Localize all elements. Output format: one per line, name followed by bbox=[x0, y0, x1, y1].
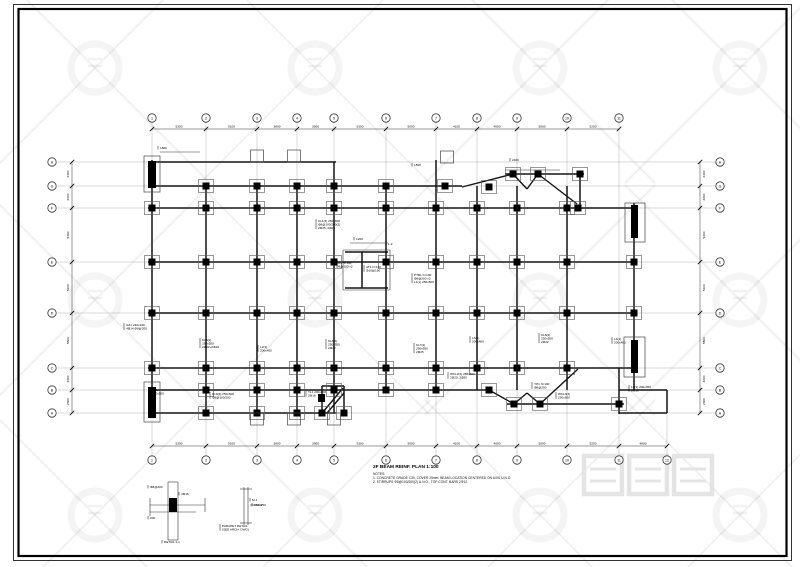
column bbox=[149, 205, 156, 212]
column bbox=[616, 401, 623, 408]
plan-title: 2F BEAM REINF. PLAN 1:100 bbox=[373, 464, 439, 470]
dim-label-bottom: 5100 bbox=[228, 442, 235, 446]
column bbox=[203, 259, 210, 266]
dim-label-top: 5300 bbox=[357, 125, 364, 129]
grid-bubble-label: G bbox=[51, 184, 54, 188]
shear-wall bbox=[631, 340, 638, 373]
column bbox=[254, 259, 261, 266]
column bbox=[433, 365, 440, 372]
drawing-sheet: 5300510038003900530050004100400050005200… bbox=[0, 0, 800, 567]
dim-label-bottom: 4000 bbox=[494, 442, 501, 446]
column bbox=[564, 259, 571, 266]
annotation-text: 4Φ16 bbox=[181, 492, 189, 496]
column bbox=[514, 205, 521, 212]
grid-bubble-label: 9 bbox=[516, 116, 518, 120]
column bbox=[514, 365, 521, 372]
column bbox=[149, 310, 156, 317]
column bbox=[564, 205, 571, 212]
column bbox=[433, 387, 440, 394]
column bbox=[575, 205, 582, 212]
column bbox=[203, 365, 210, 372]
column bbox=[331, 365, 338, 372]
annotation-text: 200x400 bbox=[472, 339, 484, 343]
column bbox=[149, 259, 156, 266]
grid-bubble-label: 10 bbox=[565, 116, 569, 120]
grid-bubble-label: 2 bbox=[205, 458, 207, 462]
dim-label-right: 5500 bbox=[702, 337, 706, 344]
dim-label-bottom: 3900 bbox=[312, 442, 319, 446]
column bbox=[254, 365, 261, 372]
grid-bubble-label: 7 bbox=[435, 116, 437, 120]
beam-diagonal bbox=[489, 390, 514, 404]
annotation-text: Φ8@200 bbox=[534, 385, 547, 389]
dim-label-right: 2300 bbox=[702, 398, 706, 405]
column bbox=[474, 310, 481, 317]
dim-label-left: 2400 bbox=[66, 170, 70, 177]
column bbox=[294, 205, 301, 212]
column bbox=[331, 183, 338, 190]
grid-bubble-label: 1 bbox=[151, 116, 153, 120]
annotation-text: 1500 bbox=[414, 163, 421, 167]
annotation-text: 250x250 bbox=[254, 503, 266, 507]
column bbox=[203, 387, 210, 394]
grid-bubble-label: 5 bbox=[333, 458, 335, 462]
column bbox=[254, 205, 261, 212]
column bbox=[433, 310, 440, 317]
annotation-text: 2Φ25 bbox=[416, 350, 424, 354]
dim-label-bottom: 5000 bbox=[539, 442, 546, 446]
annotation-text: 2Φ25; 2Φ25 bbox=[318, 226, 335, 230]
grid-bubble-label: 12 bbox=[665, 458, 669, 462]
grid-bubble-label: 4 bbox=[296, 116, 298, 120]
grid-bubble-label: G bbox=[719, 184, 722, 188]
grid-bubble-label: 6 bbox=[385, 458, 387, 462]
grid-bubble-label: H bbox=[719, 160, 722, 164]
annotation-text: 250x500 bbox=[558, 395, 570, 399]
grid-bubble-label: 10 bbox=[565, 458, 569, 462]
column bbox=[254, 387, 261, 394]
grid-bubble-label: 11 bbox=[617, 116, 621, 120]
shear-wall bbox=[631, 205, 638, 238]
column bbox=[254, 183, 261, 190]
annotation-text: 200x400 bbox=[260, 348, 272, 352]
column bbox=[433, 259, 440, 266]
grid-bubble-label: C bbox=[719, 366, 722, 370]
sheet-border-inner bbox=[19, 9, 787, 556]
beam-diagonal bbox=[538, 174, 577, 204]
annotation-text: DETAIL 1-1 bbox=[164, 540, 180, 544]
annotation-text: Φ8@150 x2 bbox=[336, 264, 353, 268]
dim-label-right: 2400 bbox=[702, 170, 706, 177]
column bbox=[319, 410, 326, 417]
dim-label-top: 3900 bbox=[312, 125, 319, 129]
column bbox=[535, 171, 542, 178]
shear-wall bbox=[169, 498, 177, 512]
grid-bubble-label: 4 bbox=[296, 458, 298, 462]
watermark-diagonal bbox=[625, 0, 800, 183]
column bbox=[331, 310, 338, 317]
annotation-text: 2Φ20; 2Φ20 bbox=[450, 375, 467, 379]
annotation-text: 2Φ22+2Φ20 bbox=[202, 345, 219, 349]
column bbox=[442, 183, 449, 190]
column bbox=[203, 183, 210, 190]
column bbox=[510, 171, 517, 178]
annotation-text: Φ8@200 bbox=[150, 485, 163, 489]
column bbox=[514, 259, 521, 266]
column bbox=[577, 171, 584, 178]
annotation-text: 500x500 bbox=[152, 391, 164, 395]
dim-label-left: 2200 bbox=[66, 193, 70, 200]
watermark-diagonal bbox=[0, 185, 210, 415]
annotation-text: 4Φ14 Φ8@200 bbox=[126, 326, 147, 330]
annotation-text: L-2 bbox=[388, 242, 393, 246]
column bbox=[331, 205, 338, 212]
grid-bubble-label: 9 bbox=[516, 458, 518, 462]
annotation-text: 2Φ16 bbox=[631, 388, 639, 392]
grid-bubble-label: 3 bbox=[256, 458, 258, 462]
column bbox=[383, 387, 390, 394]
grid-bubble-label: 2 bbox=[205, 116, 207, 120]
annotation-text: 2Φ22 bbox=[328, 346, 336, 350]
column bbox=[564, 365, 571, 372]
column bbox=[433, 205, 440, 212]
column bbox=[294, 387, 301, 394]
dim-label-top: 5300 bbox=[176, 125, 183, 129]
site-logo-glyph bbox=[629, 456, 667, 494]
column bbox=[631, 259, 638, 266]
annotation-text: 2400 bbox=[512, 158, 519, 162]
dim-label-bottom: 4100 bbox=[453, 442, 460, 446]
dim-label-bottom: 3800 bbox=[274, 442, 281, 446]
dim-label-top: 5100 bbox=[228, 125, 235, 129]
column bbox=[486, 387, 493, 394]
dim-label-bottom: 5200 bbox=[590, 442, 597, 446]
column bbox=[294, 365, 301, 372]
column bbox=[514, 310, 521, 317]
annotation-text: (SEE ARCH. DWG) bbox=[222, 527, 249, 531]
column bbox=[383, 259, 390, 266]
column bbox=[341, 410, 348, 417]
dim-label-left: 5400 bbox=[66, 231, 70, 238]
grid-bubble-label: 8 bbox=[476, 116, 478, 120]
dim-label-top: 5000 bbox=[539, 125, 546, 129]
column bbox=[631, 310, 638, 317]
column-outline bbox=[288, 150, 301, 162]
dim-label-right: 2200 bbox=[702, 193, 706, 200]
annotation-text: 1800 bbox=[160, 146, 167, 150]
dim-label-bottom: 5000 bbox=[408, 442, 415, 446]
annotation-text: Φ8@100/200 bbox=[212, 395, 231, 399]
column bbox=[537, 401, 544, 408]
column bbox=[383, 205, 390, 212]
annotation-text: 200 bbox=[150, 516, 155, 520]
grid-bubble-label: 1 bbox=[151, 458, 153, 462]
column bbox=[474, 205, 481, 212]
dim-label-left: 5500 bbox=[66, 337, 70, 344]
grid-bubble-label: D bbox=[51, 311, 54, 315]
dim-label-right: 5100 bbox=[702, 284, 706, 291]
annotation-text: M-1 bbox=[252, 498, 258, 502]
column bbox=[203, 205, 210, 212]
column bbox=[474, 365, 481, 372]
column bbox=[331, 387, 338, 394]
grid-bubble-label: H bbox=[51, 160, 54, 164]
shear-wall bbox=[318, 394, 325, 402]
grid-bubble-label: 8 bbox=[476, 458, 478, 462]
annotation-text: 200x400 bbox=[614, 340, 626, 344]
annotation-text: Φ10@150 bbox=[366, 268, 380, 272]
grid-bubble-label: 5 bbox=[333, 116, 335, 120]
annotation-text: 2Φ18 bbox=[308, 393, 316, 397]
grid-bubble-label: 11 bbox=[617, 458, 621, 462]
dim-label-right: 2200 bbox=[702, 375, 706, 382]
site-logo-glyph bbox=[674, 456, 712, 494]
dim-label-left: 2200 bbox=[66, 375, 70, 382]
dim-label-bottom: 4800 bbox=[640, 442, 647, 446]
plan-canvas: 5300510038003900530050004100400050005200… bbox=[0, 0, 800, 567]
shear-wall bbox=[148, 161, 156, 188]
column bbox=[383, 183, 390, 190]
column bbox=[149, 365, 156, 372]
dim-label-top: 4100 bbox=[453, 125, 460, 129]
watermark-diagonal bbox=[0, 185, 210, 415]
dim-label-top: 5000 bbox=[408, 125, 415, 129]
annotation-text: L1(1) 250x500 bbox=[414, 280, 434, 284]
column bbox=[254, 310, 261, 317]
column bbox=[294, 259, 301, 266]
column bbox=[294, 183, 301, 190]
column bbox=[383, 365, 390, 372]
column bbox=[383, 310, 390, 317]
annotation-text: 2Φ22 bbox=[541, 340, 549, 344]
dim-label-bottom: 5300 bbox=[357, 442, 364, 446]
dim-label-top: 4000 bbox=[494, 125, 501, 129]
column bbox=[511, 401, 518, 408]
grid-bubble-label: 3 bbox=[256, 116, 258, 120]
column bbox=[203, 310, 210, 317]
dim-label-top: 3800 bbox=[274, 125, 281, 129]
dim-label-left: 5100 bbox=[66, 284, 70, 291]
column bbox=[564, 310, 571, 317]
dim-label-right: 5400 bbox=[702, 231, 706, 238]
dim-label-top: 5200 bbox=[590, 125, 597, 129]
annotation-text: 1200 bbox=[356, 237, 363, 241]
column bbox=[486, 184, 493, 191]
column bbox=[294, 310, 301, 317]
dim-label-bottom: 5300 bbox=[176, 442, 183, 446]
column bbox=[203, 410, 210, 417]
grid-bubble-label: C bbox=[51, 366, 54, 370]
plan-note-2: 2. STIRRUPS Φ8@100/200(2) U.N.O., TOP CO… bbox=[373, 480, 468, 484]
grid-bubble-label: D bbox=[719, 311, 722, 315]
grid-bubble-label: 6 bbox=[385, 116, 387, 120]
dim-label-left: 2300 bbox=[66, 398, 70, 405]
column bbox=[474, 259, 481, 266]
grid-bubble-label: 7 bbox=[435, 458, 437, 462]
